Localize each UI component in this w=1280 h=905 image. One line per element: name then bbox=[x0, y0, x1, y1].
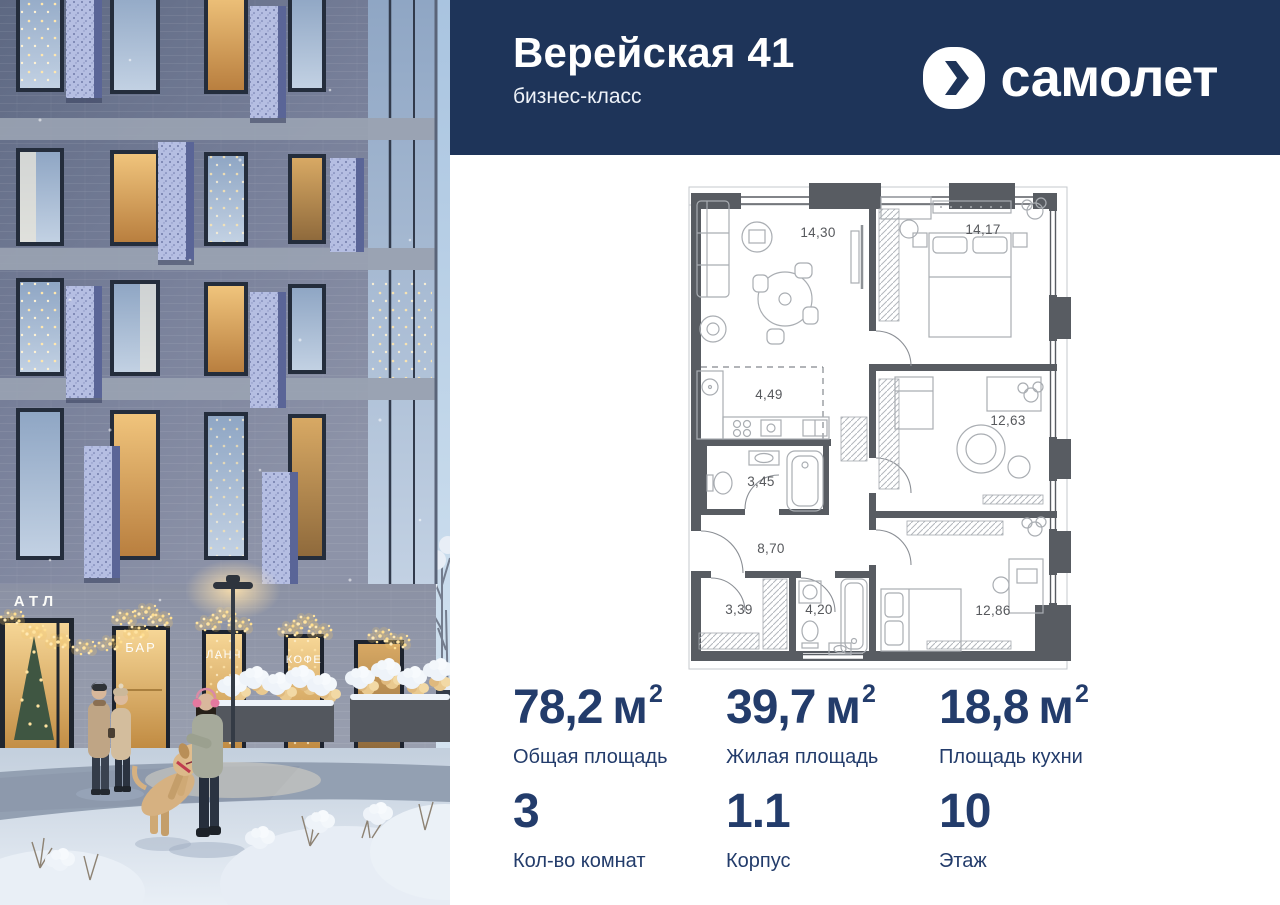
floor-plan: 14,30 14,17 4,49 12,63 3,45 8,70 3,39 4,… bbox=[683, 181, 1073, 676]
stat-label: Корпус bbox=[726, 851, 931, 871]
floor-slab bbox=[0, 378, 368, 400]
stat-label: Площадь кухни bbox=[939, 747, 1144, 767]
stat-living-area: 39,7м2 Жилая площадь bbox=[726, 684, 931, 767]
room-area-label: 14,17 bbox=[965, 222, 1000, 237]
room-area-label: 4,49 bbox=[755, 387, 782, 402]
room-area-label: 4,20 bbox=[805, 602, 832, 617]
room-area-label: 12,86 bbox=[975, 603, 1010, 618]
room-area-label: 3,39 bbox=[725, 602, 752, 617]
stat-label: Этаж bbox=[939, 851, 1144, 871]
stat-total-area: 78,2м2 Общая площадь bbox=[513, 684, 718, 767]
stat-value: 18,8м2 bbox=[939, 684, 1144, 732]
room-area-label: 8,70 bbox=[757, 541, 784, 556]
building-photo: АТЛ БАР ЛАНЧ КОФЕ bbox=[0, 0, 450, 905]
brand-name: самолет bbox=[1001, 51, 1218, 105]
header: Верейская 41 бизнес-класс самолет bbox=[450, 0, 1280, 155]
building-facade bbox=[0, 0, 436, 594]
room-area-label: 3,45 bbox=[747, 474, 774, 489]
room-area-label: 12,63 bbox=[990, 413, 1025, 428]
stat-value: 3 bbox=[513, 788, 718, 836]
stat-kitchen-area: 18,8м2 Площадь кухни bbox=[939, 684, 1144, 767]
room-area-label: 14,30 bbox=[800, 225, 835, 240]
stat-label: Общая площадь bbox=[513, 747, 718, 767]
stat-building: 1.1 Корпус bbox=[726, 788, 931, 871]
project-title: Верейская 41 bbox=[513, 32, 795, 74]
stat-value: 39,7м2 bbox=[726, 684, 931, 732]
listing-panel: Верейская 41 бизнес-класс самолет bbox=[450, 0, 1280, 905]
stat-label: Кол-во комнат bbox=[513, 851, 718, 871]
apartment-card: АТЛ БАР ЛАНЧ КОФЕ bbox=[0, 0, 1280, 905]
floor-slab bbox=[0, 118, 368, 140]
sign-coffee: КОФЕ bbox=[286, 654, 323, 666]
corner-glazing bbox=[368, 0, 436, 584]
kitchen-zone-divider bbox=[701, 367, 823, 439]
project-class: бизнес-класс bbox=[513, 86, 795, 107]
building-photo-illustration: АТЛ БАР ЛАНЧ КОФЕ bbox=[0, 0, 450, 905]
earmuff bbox=[211, 699, 220, 708]
apartment-stats: 78,2м2 Общая площадь 39,7м2 Жилая площад… bbox=[513, 676, 1233, 886]
stat-value: 78,2м2 bbox=[513, 684, 718, 732]
stat-rooms-count: 3 Кол-во комнат bbox=[513, 788, 718, 871]
earmuff bbox=[193, 699, 202, 708]
stat-value: 1.1 bbox=[726, 788, 931, 836]
samolet-badge-icon bbox=[923, 47, 985, 109]
stat-label: Жилая площадь bbox=[726, 747, 931, 767]
sign-lunch: ЛАНЧ bbox=[206, 649, 242, 661]
sign-entrance: АТЛ bbox=[14, 593, 58, 610]
floor-plan-drawing: 14,30 14,17 4,49 12,63 3,45 8,70 3,39 4,… bbox=[683, 181, 1073, 676]
facade-outline bbox=[689, 187, 1067, 669]
sign-bar: БАР bbox=[125, 640, 157, 655]
stat-floor: 10 Этаж bbox=[939, 788, 1144, 871]
samolet-logo: самолет bbox=[923, 47, 1218, 109]
stat-value: 10 bbox=[939, 788, 1144, 836]
